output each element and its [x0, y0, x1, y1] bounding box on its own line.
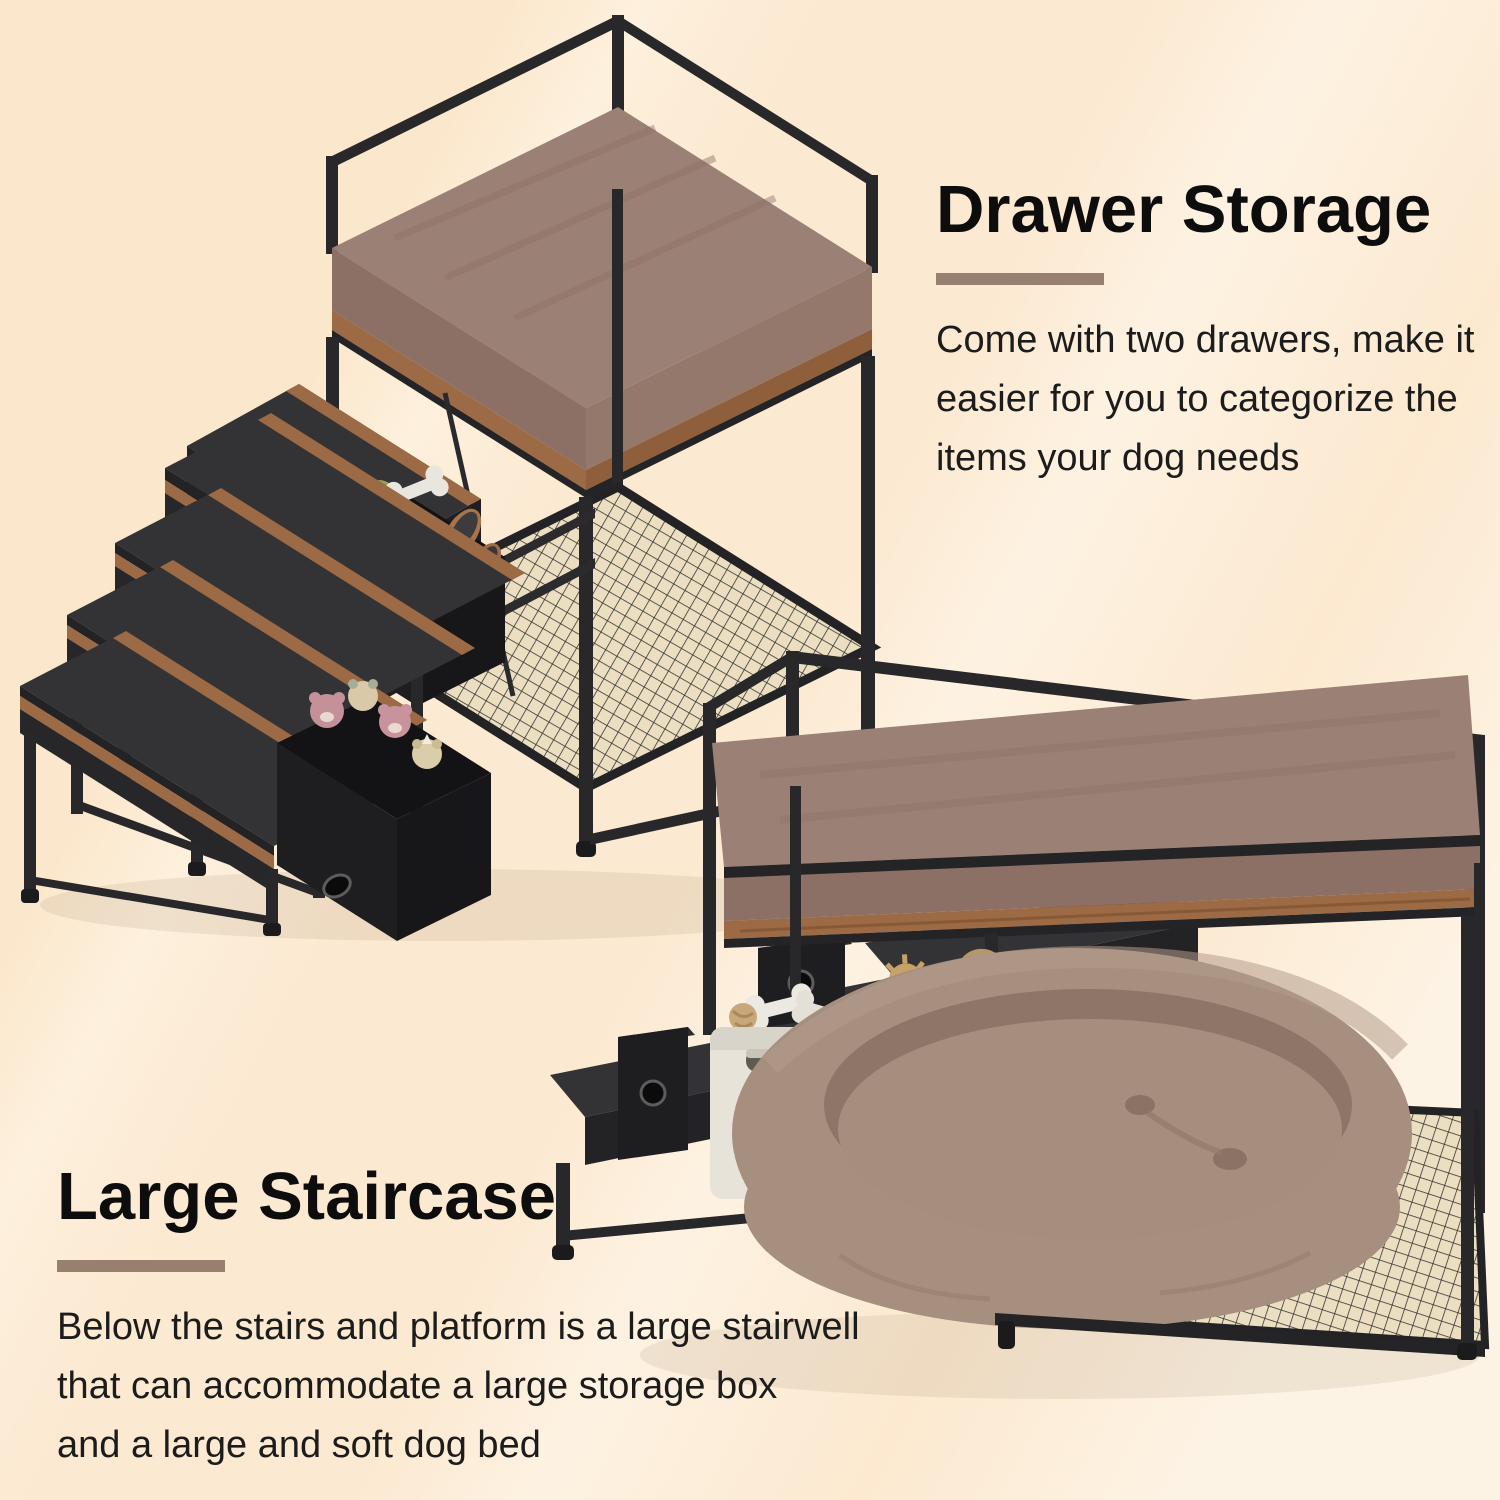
large-staircase-description: Below the stairs and platform is a large… — [57, 1298, 917, 1475]
closed-drawer-lower — [618, 1027, 695, 1160]
cream-plush — [348, 679, 378, 711]
drawer-storage-heading: Drawer Storage — [936, 176, 1476, 243]
product-infographic: Drawer Storage Come with two drawers, ma… — [0, 0, 1500, 1500]
large-staircase-divider — [57, 1260, 225, 1272]
feature-drawer-storage: Drawer Storage Come with two drawers, ma… — [936, 176, 1476, 488]
platform-cushion — [332, 107, 872, 498]
feature-large-staircase: Large Staircase Below the stairs and pla… — [57, 1163, 917, 1475]
front-cushion — [712, 675, 1480, 948]
drawer-storage-description: Come with two drawers, make it easier fo… — [936, 311, 1476, 488]
cream-unicorn — [412, 734, 442, 769]
drawer-storage-divider — [936, 273, 1104, 285]
large-staircase-heading: Large Staircase — [57, 1163, 917, 1230]
